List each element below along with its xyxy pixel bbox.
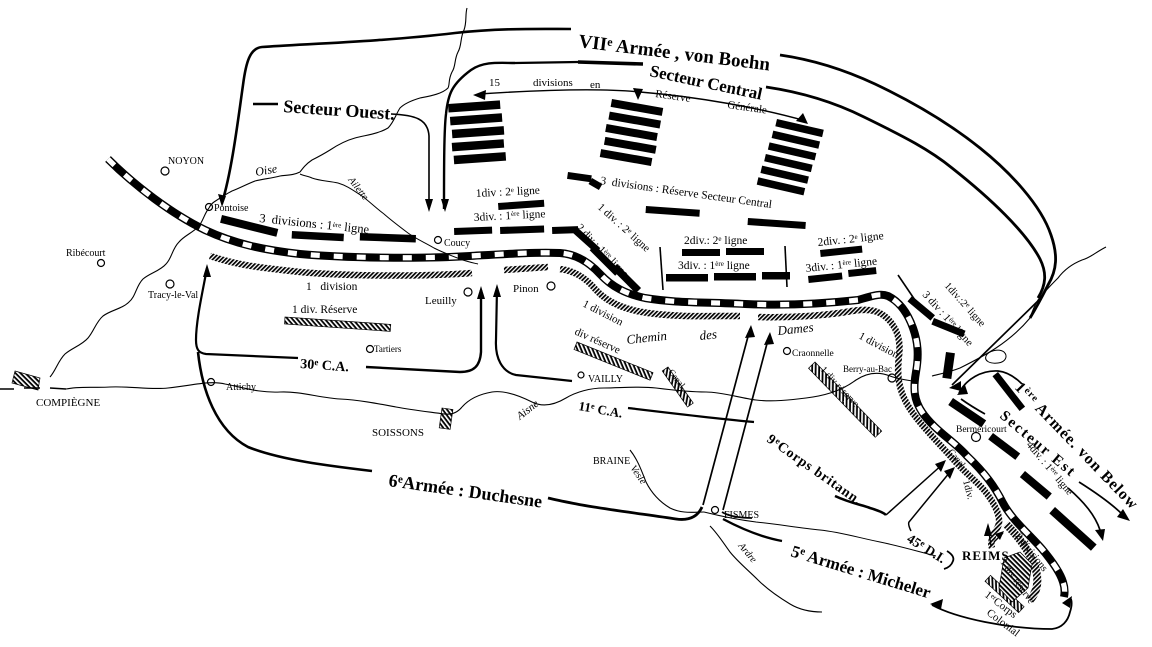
svg-text:divisions: divisions (533, 77, 573, 89)
svg-text:Pinon: Pinon (513, 283, 539, 295)
svg-text:15: 15 (489, 77, 501, 89)
svg-text:Tartiers: Tartiers (374, 344, 402, 354)
svg-text:Attichy: Attichy (226, 382, 256, 393)
svg-text:3div. : 1ère ligne: 3div. : 1ère ligne (678, 260, 750, 272)
svg-text:1 division: 1 division (306, 281, 358, 293)
svg-text:Ribécourt: Ribécourt (66, 248, 106, 259)
svg-text:REIMS: REIMS (962, 548, 1010, 563)
svg-text:BRAINE: BRAINE (593, 456, 630, 467)
svg-text:Pontoise: Pontoise (214, 203, 249, 214)
svg-text:Berry-au-Bac: Berry-au-Bac (843, 364, 892, 374)
svg-text:Coucy: Coucy (444, 238, 470, 249)
svg-text:1 div. Réserve: 1 div. Réserve (292, 304, 357, 316)
svg-text:SOISSONS: SOISSONS (372, 427, 424, 439)
svg-text:Craonnelle: Craonnelle (792, 349, 834, 359)
svg-text:30e C.A.: 30e C.A. (300, 356, 350, 375)
svg-text:COMPIÈGNE: COMPIÈGNE (36, 397, 100, 409)
svg-text:2div.: 2e ligne: 2div.: 2e ligne (684, 235, 747, 247)
svg-text:Berméricourt: Berméricourt (956, 425, 1007, 435)
svg-text:des: des (699, 326, 718, 343)
svg-text:en: en (590, 79, 601, 91)
svg-text:NOYON: NOYON (168, 156, 204, 167)
svg-text:Tracy-le-Val: Tracy-le-Val (148, 290, 198, 301)
svg-text:FISMES: FISMES (724, 510, 759, 521)
svg-text:VAILLY: VAILLY (588, 374, 623, 385)
svg-text:Leuilly: Leuilly (425, 295, 457, 307)
